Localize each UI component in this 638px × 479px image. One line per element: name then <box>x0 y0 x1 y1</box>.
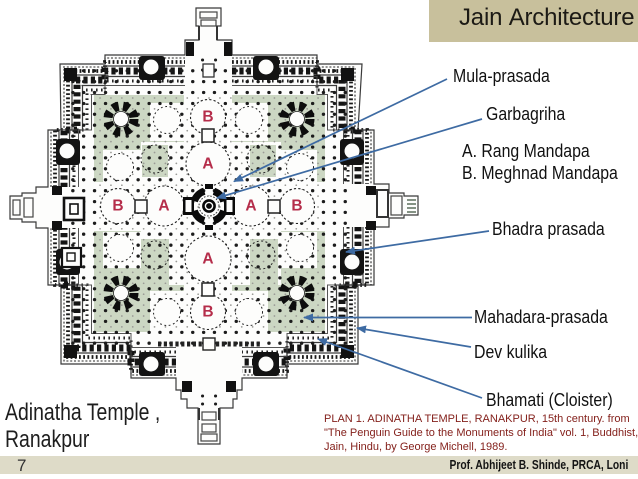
svg-text:A: A <box>158 198 169 215</box>
svg-text:B: B <box>202 109 213 126</box>
svg-text:A: A <box>245 198 256 215</box>
svg-text:B: B <box>112 198 123 215</box>
svg-text:B: B <box>202 304 213 321</box>
svg-text:A: A <box>202 156 213 173</box>
svg-text:B: B <box>291 198 302 215</box>
svg-text:A: A <box>202 251 213 268</box>
